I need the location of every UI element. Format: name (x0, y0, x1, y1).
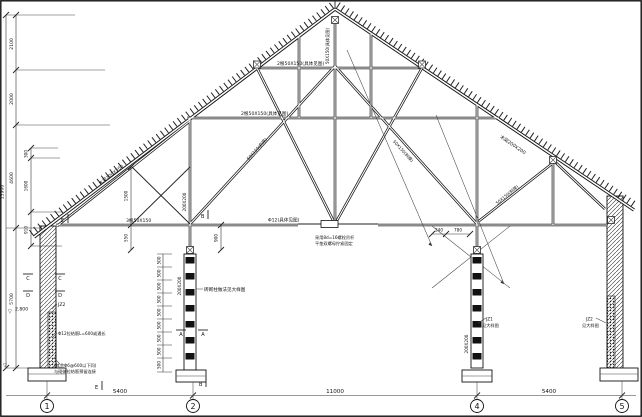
dim-550: 550 (124, 234, 129, 242)
collar-lower-label: 2根50X150(具体见图) (241, 110, 288, 117)
brick-column-grid4 (471, 254, 483, 368)
diag-left-label: 50X150(斜撑) (245, 136, 269, 162)
dim-5700: 5700 (9, 293, 15, 305)
rod-note-line2: 平垫双螺母拧紧固定 (315, 240, 353, 247)
dim-300: 300 (24, 150, 29, 158)
dim-900: 900 (214, 234, 219, 242)
dim-500: 500 (157, 308, 162, 316)
dim-total-height: 13900 (0, 185, 6, 200)
footings (28, 368, 638, 382)
footing-grid5 (600, 368, 638, 381)
jz2-ref: 见大样图 (582, 322, 599, 329)
tie-mid-dim: 900 (214, 222, 225, 253)
rod-note-line1: 采用8d=16螺栓吊杆 (315, 234, 355, 241)
left-wall-infill (48, 312, 56, 368)
ground-datum-icon: ▽ (3, 363, 7, 369)
span-11000: 11000 (326, 389, 344, 395)
grid-bubble-4-label: 4 (474, 402, 479, 411)
section-e-top: E (61, 218, 64, 224)
section-c-left: C (26, 276, 30, 282)
right-wall-infill (607, 296, 615, 368)
member-labels: 木梁200X200 木梁200X200 50X150(具体见图) 2根50X15… (97, 28, 527, 247)
level-datum-icon: ▽ (8, 309, 12, 315)
col2-size-label: 200X200 (177, 276, 182, 295)
right-roof-tiles (338, 5, 637, 206)
col4-dims: 240 780 (429, 228, 473, 238)
section-d-left: D (26, 293, 30, 299)
section-e-bottom: E (95, 385, 98, 391)
grid-bubbles: 1 2 4 5 (41, 400, 629, 413)
grid-bubble-1-label: 1 (44, 402, 49, 411)
section-c-right: C (58, 276, 62, 282)
col4-size-label: 200X200 (464, 334, 469, 353)
column-labels: 200X200 砖砌柱做法见大样图 200X200 JZ1 见大样图 JZ2 见… (52, 276, 606, 353)
span-5400-right: 5400 (542, 389, 557, 395)
wall-notes: Φ12拉结筋L=600或通长 (其余Φ6@600以下同) 与砌体拉结筋预留连接 (52, 330, 106, 375)
left-wall-mark: JZ2 (57, 302, 66, 308)
wall-tie-bar-note: Φ12拉结筋L=600或通长 (58, 330, 106, 337)
king-post-label: 50X150(具体见图) (324, 28, 331, 65)
drawing-canvas: 13900 2100 2000 4600 5700 300 1600 910 ▽… (0, 0, 642, 417)
dim-500: 500 (157, 256, 162, 264)
queen-post-label: 200X200 (182, 192, 187, 211)
dim-500: 500 (157, 282, 162, 290)
col2-note: 砖砌柱做法见大样图 (204, 286, 246, 293)
dim-500: 500 (157, 361, 162, 369)
diag-right2-label: 50X150(斜撑) (494, 183, 520, 206)
dim-910: 910 (24, 226, 29, 234)
section-a-right: A (201, 332, 205, 338)
dim-2100: 2100 (9, 38, 15, 50)
dim-1500: 1500 (124, 190, 129, 201)
dim-500: 500 (157, 269, 162, 277)
tie-beam-label: 3根50X150 (126, 217, 151, 224)
jz2-code: JZ2 (585, 317, 593, 322)
section-b-bottom: B (199, 382, 203, 388)
truss-members (34, 9, 634, 254)
section-a-left: A (179, 332, 183, 338)
grid-bubble-5-label: 5 (619, 402, 624, 411)
roof-truss-section-drawing: 13900 2100 2000 4600 5700 300 1600 910 ▽… (0, 0, 642, 417)
bottom-dimensions: 5400 11000 5400 (6, 381, 636, 399)
dim-500: 500 (157, 347, 162, 355)
wall-note-line1: (其余Φ6@600以下同) (54, 362, 97, 369)
jz1-ref: 见大样图 (482, 322, 499, 329)
grid-bubble-2-label: 2 (190, 402, 195, 411)
turnbuckle (321, 221, 338, 228)
span-5400-left: 5400 (113, 389, 128, 395)
rod-label: Φ12(具体见图) (268, 217, 300, 224)
section-b-top: B (201, 214, 205, 220)
brick-column-grid2 (184, 254, 196, 370)
dim-240: 240 (435, 228, 443, 233)
queen-post-dims: 1500 550 (124, 164, 135, 253)
dim-500: 500 (157, 334, 162, 342)
wall-note-line2: 与砌体拉结筋预留连接 (54, 368, 97, 375)
dim-500: 500 (157, 295, 162, 303)
section-d-right: D (58, 293, 62, 299)
level-value: 2.800 (15, 307, 28, 313)
collar-upper-label: 2根50X150(具体见图) (277, 60, 324, 67)
dim-500: 500 (157, 321, 162, 329)
dim-780: 780 (454, 228, 462, 233)
dim-2000: 2000 (9, 93, 15, 105)
col2-dimension-chain: 500 500 500 500 500 500 500 500 500 (157, 254, 173, 372)
level-marks: ▽ 2.800 ▽ (3, 307, 28, 370)
dim-1600: 1600 (24, 180, 29, 191)
jz1-code: JZ1 (485, 317, 493, 322)
dim-4600: 4600 (9, 172, 15, 184)
